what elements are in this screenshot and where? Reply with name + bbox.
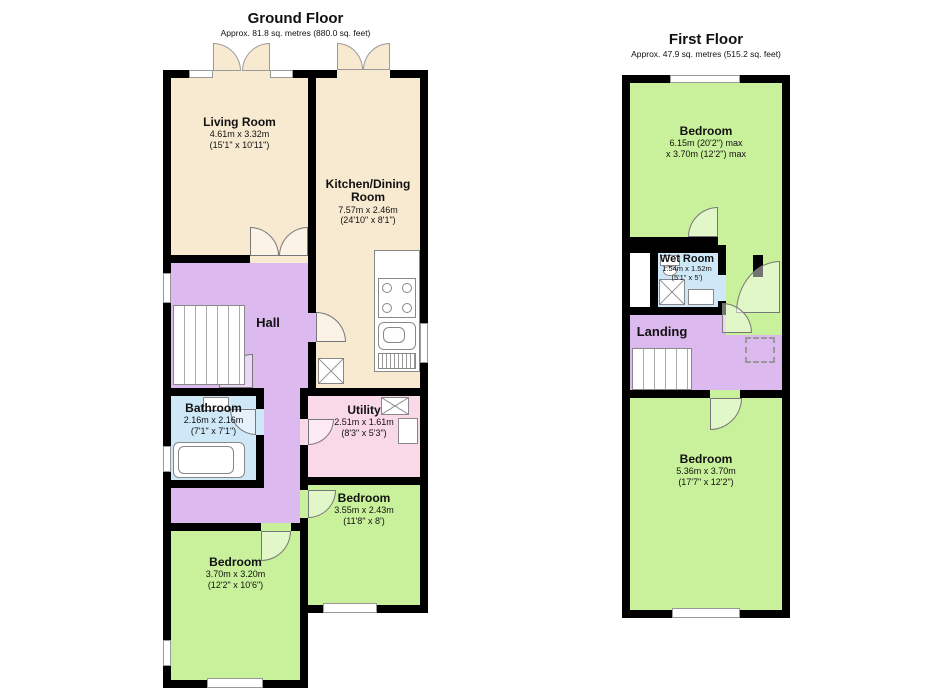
ground-floor-header: Ground Floor Approx. 81.8 sq. metres (88… (163, 10, 428, 38)
appliance-icon (378, 353, 416, 369)
hall-label: Hall (218, 316, 318, 331)
room-dims-metric: 2.51m x 1.61m (308, 417, 420, 427)
utility-door-opening (300, 419, 308, 445)
room-name: Bedroom (630, 125, 782, 138)
wet-room-door-opening (718, 275, 726, 301)
ground-floor-title: Ground Floor (163, 10, 428, 27)
bedroom-bottom-window (672, 608, 740, 618)
room-dims-imperial: (5'1" x 5') (655, 274, 719, 282)
bedroom-bottom-door-opening (710, 390, 740, 398)
living-room-label: Living Room 4.61m x 3.32m (15'1" x 10'11… (171, 116, 308, 150)
window (270, 70, 293, 78)
room-dims-imperial: (8'3" x 5'3") (308, 428, 420, 438)
room-name: Bedroom (308, 492, 420, 505)
kitchen-window (420, 323, 428, 363)
room-dims-imperial: (17'7" x 12'2") (630, 477, 782, 487)
first-floor-title: First Floor (622, 31, 790, 48)
french-door-leaf-icon (242, 43, 270, 71)
outside-area (308, 613, 428, 688)
room-dims-imperial: (11'8" x 8') (308, 516, 420, 526)
bedroom-rear-label: Bedroom 3.55m x 2.43m (11'8" x 8') (308, 492, 420, 526)
french-door-leaf-icon (363, 43, 390, 70)
floorplan-canvas: Ground Floor Approx. 81.8 sq. metres (88… (0, 0, 950, 690)
bedroom-top-label: Bedroom 6.15m (20'2") max x 3.70m (12'2"… (630, 125, 782, 159)
room-dims-metric: 2.16m x 2.16m (163, 415, 264, 425)
bedroom-front-window (207, 678, 263, 688)
bedroom-top-door-opening (718, 237, 782, 245)
hob-burner-icon (402, 283, 412, 293)
living-room (171, 78, 308, 255)
room-dims-imperial: (24'10" x 8'1") (316, 215, 420, 225)
room-name: Kitchen/Dining Room (316, 178, 420, 205)
room-dims-imperial: (12'2" x 10'6") (171, 580, 300, 590)
stair-void (630, 253, 650, 307)
shower-icon (659, 279, 685, 305)
room-name: Living Room (171, 116, 308, 129)
ground-floor-area: Approx. 81.8 sq. metres (880.0 sq. feet) (163, 28, 428, 38)
room-name: Bedroom (630, 453, 782, 466)
first-floor-header: First Floor Approx. 47.9 sq. metres (515… (622, 31, 790, 59)
french-door-leaf-icon (337, 43, 363, 70)
room-name: Utility (308, 404, 420, 417)
bedroom-front-door-opening (261, 523, 291, 531)
bathroom-label: Bathroom 2.16m x 2.16m (7'1" x 7'1") (163, 402, 264, 436)
wet-room-sink-icon (688, 289, 714, 305)
bedroom-bottom-label: Bedroom 5.36m x 3.70m (17'7" x 12'2") (630, 453, 782, 487)
room-dims-imperial: (7'1" x 7'1") (163, 426, 264, 436)
hob-burner-icon (402, 303, 412, 313)
kitchen-sink-basin-icon (383, 327, 405, 343)
room-dims-metric: 6.15m (20'2") max (630, 138, 782, 148)
landing-label: Landing (630, 325, 694, 340)
room-dims-metric: 7.57m x 2.46m (316, 205, 420, 215)
bathtub-inner-icon (178, 446, 234, 474)
kitchen-dining-label: Kitchen/Dining Room 7.57m x 2.46m (24'10… (316, 178, 420, 225)
bedroom-front-label: Bedroom 3.70m x 3.20m (12'2" x 10'6") (171, 556, 300, 590)
french-door-opening-right (337, 70, 390, 78)
hob-burner-icon (382, 303, 392, 313)
hob-burner-icon (382, 283, 392, 293)
bathroom-window (163, 446, 171, 472)
kitchen-unit-icon (318, 358, 344, 384)
first-floor-plan: Bedroom 6.15m (20'2") max x 3.70m (12'2"… (622, 75, 790, 618)
bedroom-front-side-window (163, 640, 171, 666)
loft-hatch-icon (745, 337, 775, 363)
room-dims-metric: 3.55m x 2.43m (308, 505, 420, 515)
room-name: Landing (630, 325, 694, 340)
bedroom-bottom (630, 398, 782, 610)
room-dims-metric: 4.61m x 3.32m (171, 129, 308, 139)
hall-lower-band (171, 488, 300, 523)
wet-room-label: Wet Room 1.54m x 1.52m (5'1" x 5') (655, 253, 719, 282)
room-dims-imperial: (15'1" x 10'11") (171, 140, 308, 150)
room-name: Bedroom (171, 556, 300, 569)
room-dims-imperial: x 3.70m (12'2") max (630, 149, 782, 159)
room-dims-metric: 3.70m x 3.20m (171, 569, 300, 579)
first-floor-area: Approx. 47.9 sq. metres (515.2 sq. feet) (622, 49, 790, 59)
window (189, 70, 213, 78)
room-dims-metric: 5.36m x 3.70m (630, 466, 782, 476)
staircase (632, 348, 692, 390)
bedroom-rear-door-opening (300, 490, 308, 518)
bedroom-rear-window (323, 603, 377, 613)
ground-floor-plan: Living Room 4.61m x 3.32m (15'1" x 10'11… (163, 70, 428, 688)
utility-label: Utility 2.51m x 1.61m (8'3" x 5'3") (308, 404, 420, 438)
hall-corridor (264, 388, 300, 488)
room-name: Hall (218, 316, 318, 331)
room-name: Bathroom (163, 402, 264, 415)
front-door-window (163, 273, 171, 303)
french-door-leaf-icon (213, 43, 241, 71)
french-door-opening-left (213, 70, 270, 78)
living-hall-opening (250, 255, 308, 263)
bedroom-top-window (670, 75, 740, 83)
